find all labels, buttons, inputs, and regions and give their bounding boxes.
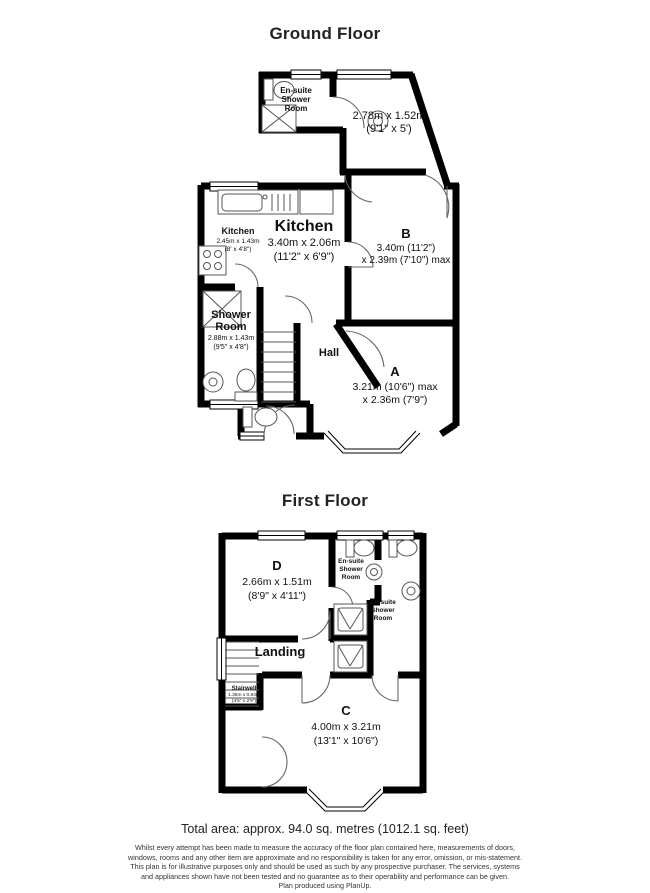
shower-tray xyxy=(334,641,367,672)
disclaimer-line: windows, rooms and any other item are ap… xyxy=(0,853,650,863)
floor-plan-drawing: En-suite Shower Room 2.78m x 1.52m (9'1"… xyxy=(0,0,650,893)
first-walls xyxy=(222,533,423,793)
basin-fixture xyxy=(402,582,420,600)
basin-fixture xyxy=(203,372,223,392)
room-c-dims: 4.00m x 3.21m xyxy=(311,721,381,733)
door-arc xyxy=(372,675,398,701)
disclaimer-line: This plan is for illustrative purposes o… xyxy=(0,862,650,872)
kitchen-small-dims: (8' x 4'8") xyxy=(225,246,252,253)
bay-window xyxy=(305,789,385,811)
ensuite2-label: En-suite xyxy=(370,599,396,606)
stairwell-label: Stairwell xyxy=(232,686,257,692)
ground-stairs xyxy=(261,332,296,402)
room-d-label: D xyxy=(272,558,281,573)
disclaimer-line: Whilst every attempt has been made to me… xyxy=(0,843,650,853)
floor-plan-page: Ground Floor First Floor xyxy=(0,0,650,893)
ensuite-label: Room xyxy=(285,104,308,113)
ensuite-label: En-suite xyxy=(280,86,312,95)
total-area-text: Total area: approx. 94.0 sq. metres (101… xyxy=(0,822,650,836)
room-d-dims: (8'9" x 4'11") xyxy=(248,590,306,602)
first-windows xyxy=(217,531,414,811)
kitchen-dims: 3.40m x 2.06m xyxy=(268,237,341,249)
kitchen-small-dims: 2.45m x 1.43m xyxy=(217,238,260,245)
room-a-dims: 3.21m (10'6") max xyxy=(352,381,438,393)
bay-window xyxy=(324,431,420,453)
first-floor-plan: D 2.66m x 1.51m (8'9" x 4'11") En-suite … xyxy=(217,531,423,811)
basin-fixture xyxy=(366,564,382,580)
kitchen-counter xyxy=(300,190,333,214)
shower-room-dims: (9'5" x 4'8") xyxy=(213,344,248,351)
kitchen-label: Kitchen xyxy=(275,218,334,235)
stairwell-dims: 1.35m x 0.84m xyxy=(228,692,260,698)
door-arc xyxy=(235,264,258,287)
door-arc xyxy=(302,611,330,639)
kitchen-small-label: Kitchen xyxy=(221,226,254,236)
room-c-label: C xyxy=(341,703,351,718)
toilet-fixture xyxy=(346,540,374,557)
hall-label: Hall xyxy=(319,347,339,359)
closet-door-arcs xyxy=(262,737,287,787)
ensuite1-label: En-suite xyxy=(338,558,364,565)
kitchen-dims: (11'2" x 6'9") xyxy=(274,251,335,263)
toilet-fixture xyxy=(389,540,417,557)
toilet-fixture xyxy=(235,369,257,401)
room-c-dims: (13'1" x 10'6") xyxy=(314,735,379,747)
ensuite1-label: Shower xyxy=(339,566,363,573)
room-d-dims: 2.66m x 1.51m xyxy=(242,576,312,588)
ensuite2-label: Shower xyxy=(371,607,395,614)
ground-floor-plan: En-suite Shower Room 2.78m x 1.52m (9'1"… xyxy=(198,70,459,453)
top-room-dims: 2.78m x 1.52m xyxy=(353,110,426,122)
ensuite-label: Shower xyxy=(282,95,311,104)
shower-room-label: Room xyxy=(215,321,246,333)
toilet-fixture xyxy=(243,407,277,427)
disclaimer-line: Plan produced using PlanUp. xyxy=(0,881,650,891)
kitchen-sink-unit xyxy=(218,190,298,214)
door-arc xyxy=(302,675,330,703)
ensuite1-label: Room xyxy=(342,574,361,581)
room-a-label: A xyxy=(390,364,400,379)
disclaimer-text: Whilst every attempt has been made to me… xyxy=(0,843,650,891)
ground-labels: En-suite Shower Room 2.78m x 1.52m (9'1"… xyxy=(208,86,451,406)
shower-room-dims: 2.88m x 1.43m xyxy=(208,335,254,342)
stairwell-dims: (4'5" x 2'9") xyxy=(232,698,257,704)
room-b-dims: 3.40m (11'2") xyxy=(377,243,436,254)
ensuite2-label: Room xyxy=(374,615,393,622)
door-arc xyxy=(285,296,312,323)
landing-label: Landing xyxy=(255,644,306,659)
disclaimer-line: and appliances shown have not been teste… xyxy=(0,872,650,882)
shower-room-label: Shower xyxy=(211,309,251,321)
room-a-dims: x 2.36m (7'9") xyxy=(363,394,428,406)
top-room-dims: (9'1" x 5') xyxy=(366,123,411,135)
hob-fixture xyxy=(199,246,226,275)
room-b-label: B xyxy=(401,226,410,241)
room-b-dims: x 2.39m (7'10") max xyxy=(362,255,451,266)
shower-tray xyxy=(334,604,367,635)
